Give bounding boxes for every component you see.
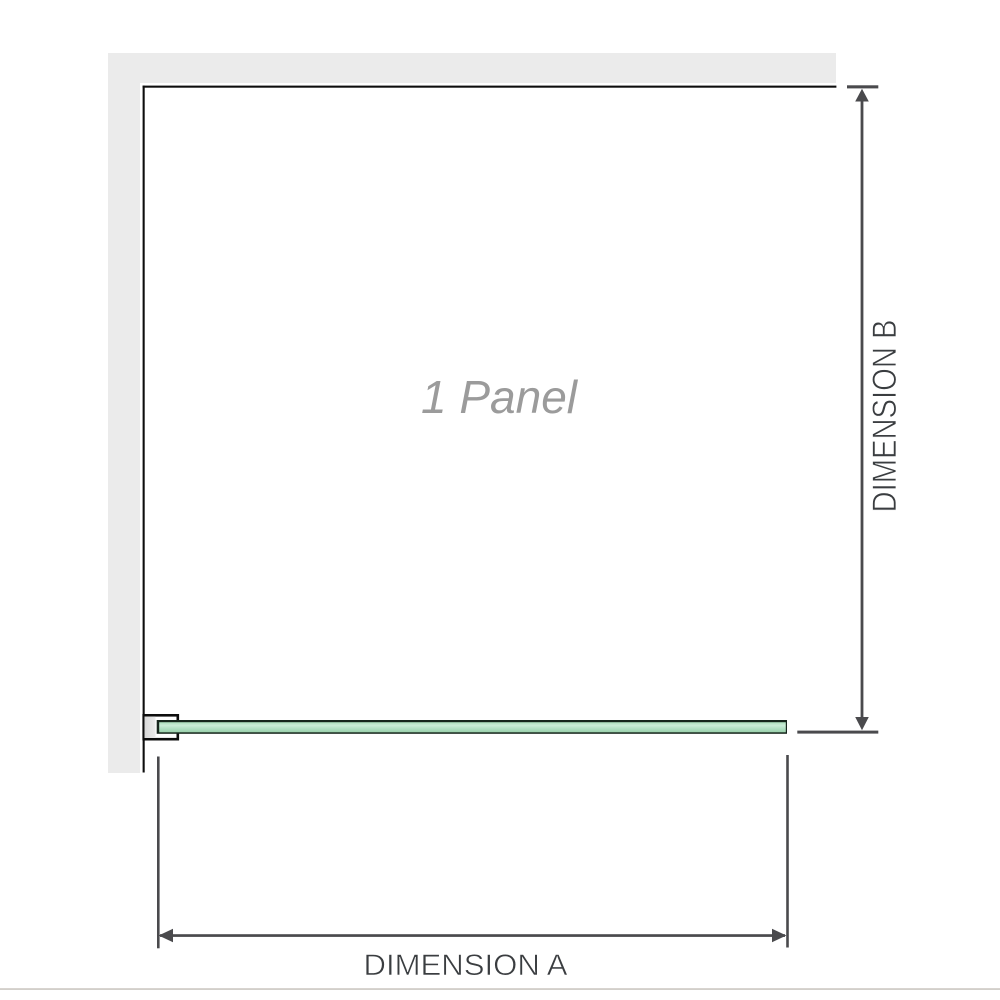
svg-text:DIMENSION A: DIMENSION A	[364, 949, 568, 982]
svg-text:DIMENSION B: DIMENSION B	[866, 320, 904, 513]
svg-text:1 Panel: 1 Panel	[421, 371, 579, 423]
